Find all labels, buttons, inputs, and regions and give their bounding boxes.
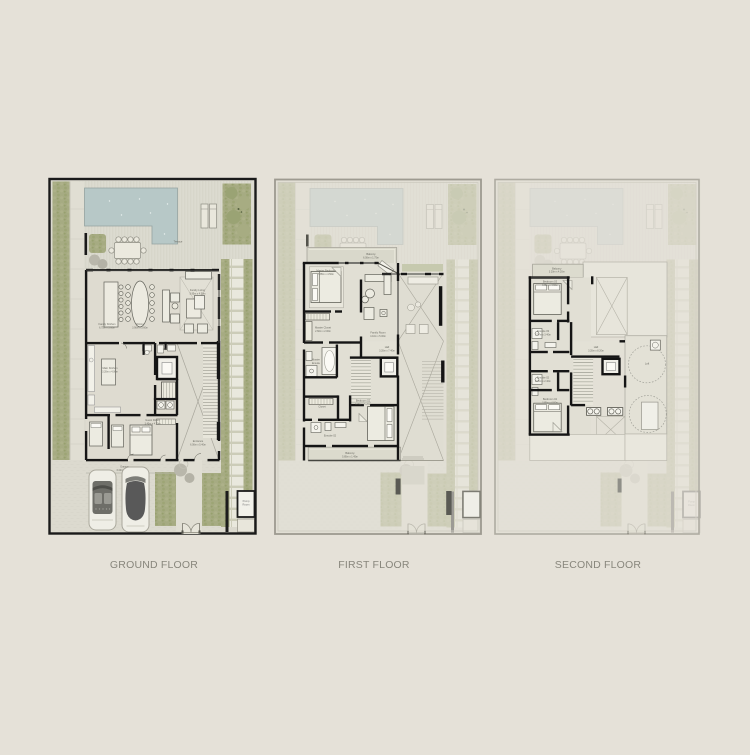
svg-text:Ensuite: Ensuite — [312, 362, 321, 365]
svg-text:Family Living: Family Living — [190, 288, 206, 292]
svg-text:Terrace: Terrace — [174, 240, 183, 244]
svg-text:Family Room: Family Room — [370, 331, 385, 335]
svg-text:Closet: Closet — [318, 405, 326, 409]
svg-text:Entrance: Entrance — [193, 439, 204, 443]
svg-text:Hall: Hall — [385, 345, 390, 349]
svg-text:Master Bedroom: Master Bedroom — [316, 269, 335, 273]
svg-text:Dining: Dining — [136, 322, 144, 326]
svg-text:3.85m x 4.60m: 3.85m x 4.60m — [542, 284, 558, 287]
svg-text:Ensuite 02: Ensuite 02 — [537, 376, 550, 380]
svg-text:2.70m x 2.40m: 2.70m x 2.40m — [535, 380, 551, 383]
svg-text:3.20m x 7.40m: 3.20m x 7.40m — [379, 349, 395, 352]
svg-text:Master: Master — [312, 358, 320, 362]
svg-text:Ensuite 02: Ensuite 02 — [324, 434, 337, 438]
svg-text:3.85m x 4.60m: 3.85m x 4.60m — [542, 401, 558, 404]
svg-text:5.85m x 1.45m: 5.85m x 1.45m — [342, 455, 358, 458]
svg-text:6.00m x 5.40m: 6.00m x 5.40m — [190, 443, 206, 446]
svg-text:Ensuite 03: Ensuite 03 — [537, 329, 550, 333]
svg-text:Hall: Hall — [163, 347, 168, 351]
svg-text:4.10m x 5.00m: 4.10m x 5.00m — [370, 335, 386, 338]
svg-text:Loft: Loft — [645, 362, 650, 366]
svg-text:Master Closet: Master Closet — [315, 326, 331, 330]
svg-text:2.60m x 2.00m: 2.60m x 2.00m — [315, 330, 331, 333]
svg-text:Bedroom 02: Bedroom 02 — [356, 399, 371, 403]
svg-text:Guest Room: Guest Room — [145, 418, 160, 422]
svg-text:3.40m x 4.25m: 3.40m x 4.25m — [145, 422, 161, 425]
svg-text:Family Kitchen: Family Kitchen — [98, 322, 116, 326]
svg-text:3.90m x 3.60m: 3.90m x 3.60m — [132, 326, 148, 329]
svg-text:3.20m x 4.00m: 3.20m x 4.00m — [102, 370, 118, 373]
svg-text:5.95m x 4.50m: 5.95m x 4.50m — [190, 292, 206, 295]
svg-text:Bedroom 02: Bedroom 02 — [543, 397, 558, 401]
svg-text:GROUND FLOOR: GROUND FLOOR — [110, 559, 198, 571]
svg-text:Main Kitchen: Main Kitchen — [103, 366, 119, 370]
svg-text:Bedroom 03: Bedroom 03 — [543, 280, 558, 284]
svg-text:3.70m x 5.20m: 3.70m x 5.20m — [355, 403, 371, 406]
svg-text:2.07m x 3.40m: 2.07m x 3.40m — [535, 333, 551, 336]
svg-text:SECOND FLOOR: SECOND FLOOR — [555, 559, 642, 571]
svg-text:5.85m x 4.50m: 5.85m x 4.50m — [318, 273, 334, 276]
svg-text:FIRST FLOOR: FIRST FLOOR — [338, 559, 410, 571]
svg-text:3.20m x 4.20m: 3.20m x 4.20m — [549, 271, 565, 274]
svg-text:6.75m x 3.60m: 6.75m x 3.60m — [99, 326, 115, 329]
svg-text:Balcony: Balcony — [366, 252, 376, 256]
svg-text:Balcony: Balcony — [552, 266, 562, 270]
svg-text:3.20m x 8.20m: 3.20m x 8.20m — [588, 349, 604, 352]
svg-text:6.00m x 1.75m: 6.00m x 1.75m — [363, 256, 379, 259]
svg-text:Hall: Hall — [594, 345, 599, 349]
svg-text:Balcony: Balcony — [345, 451, 355, 455]
